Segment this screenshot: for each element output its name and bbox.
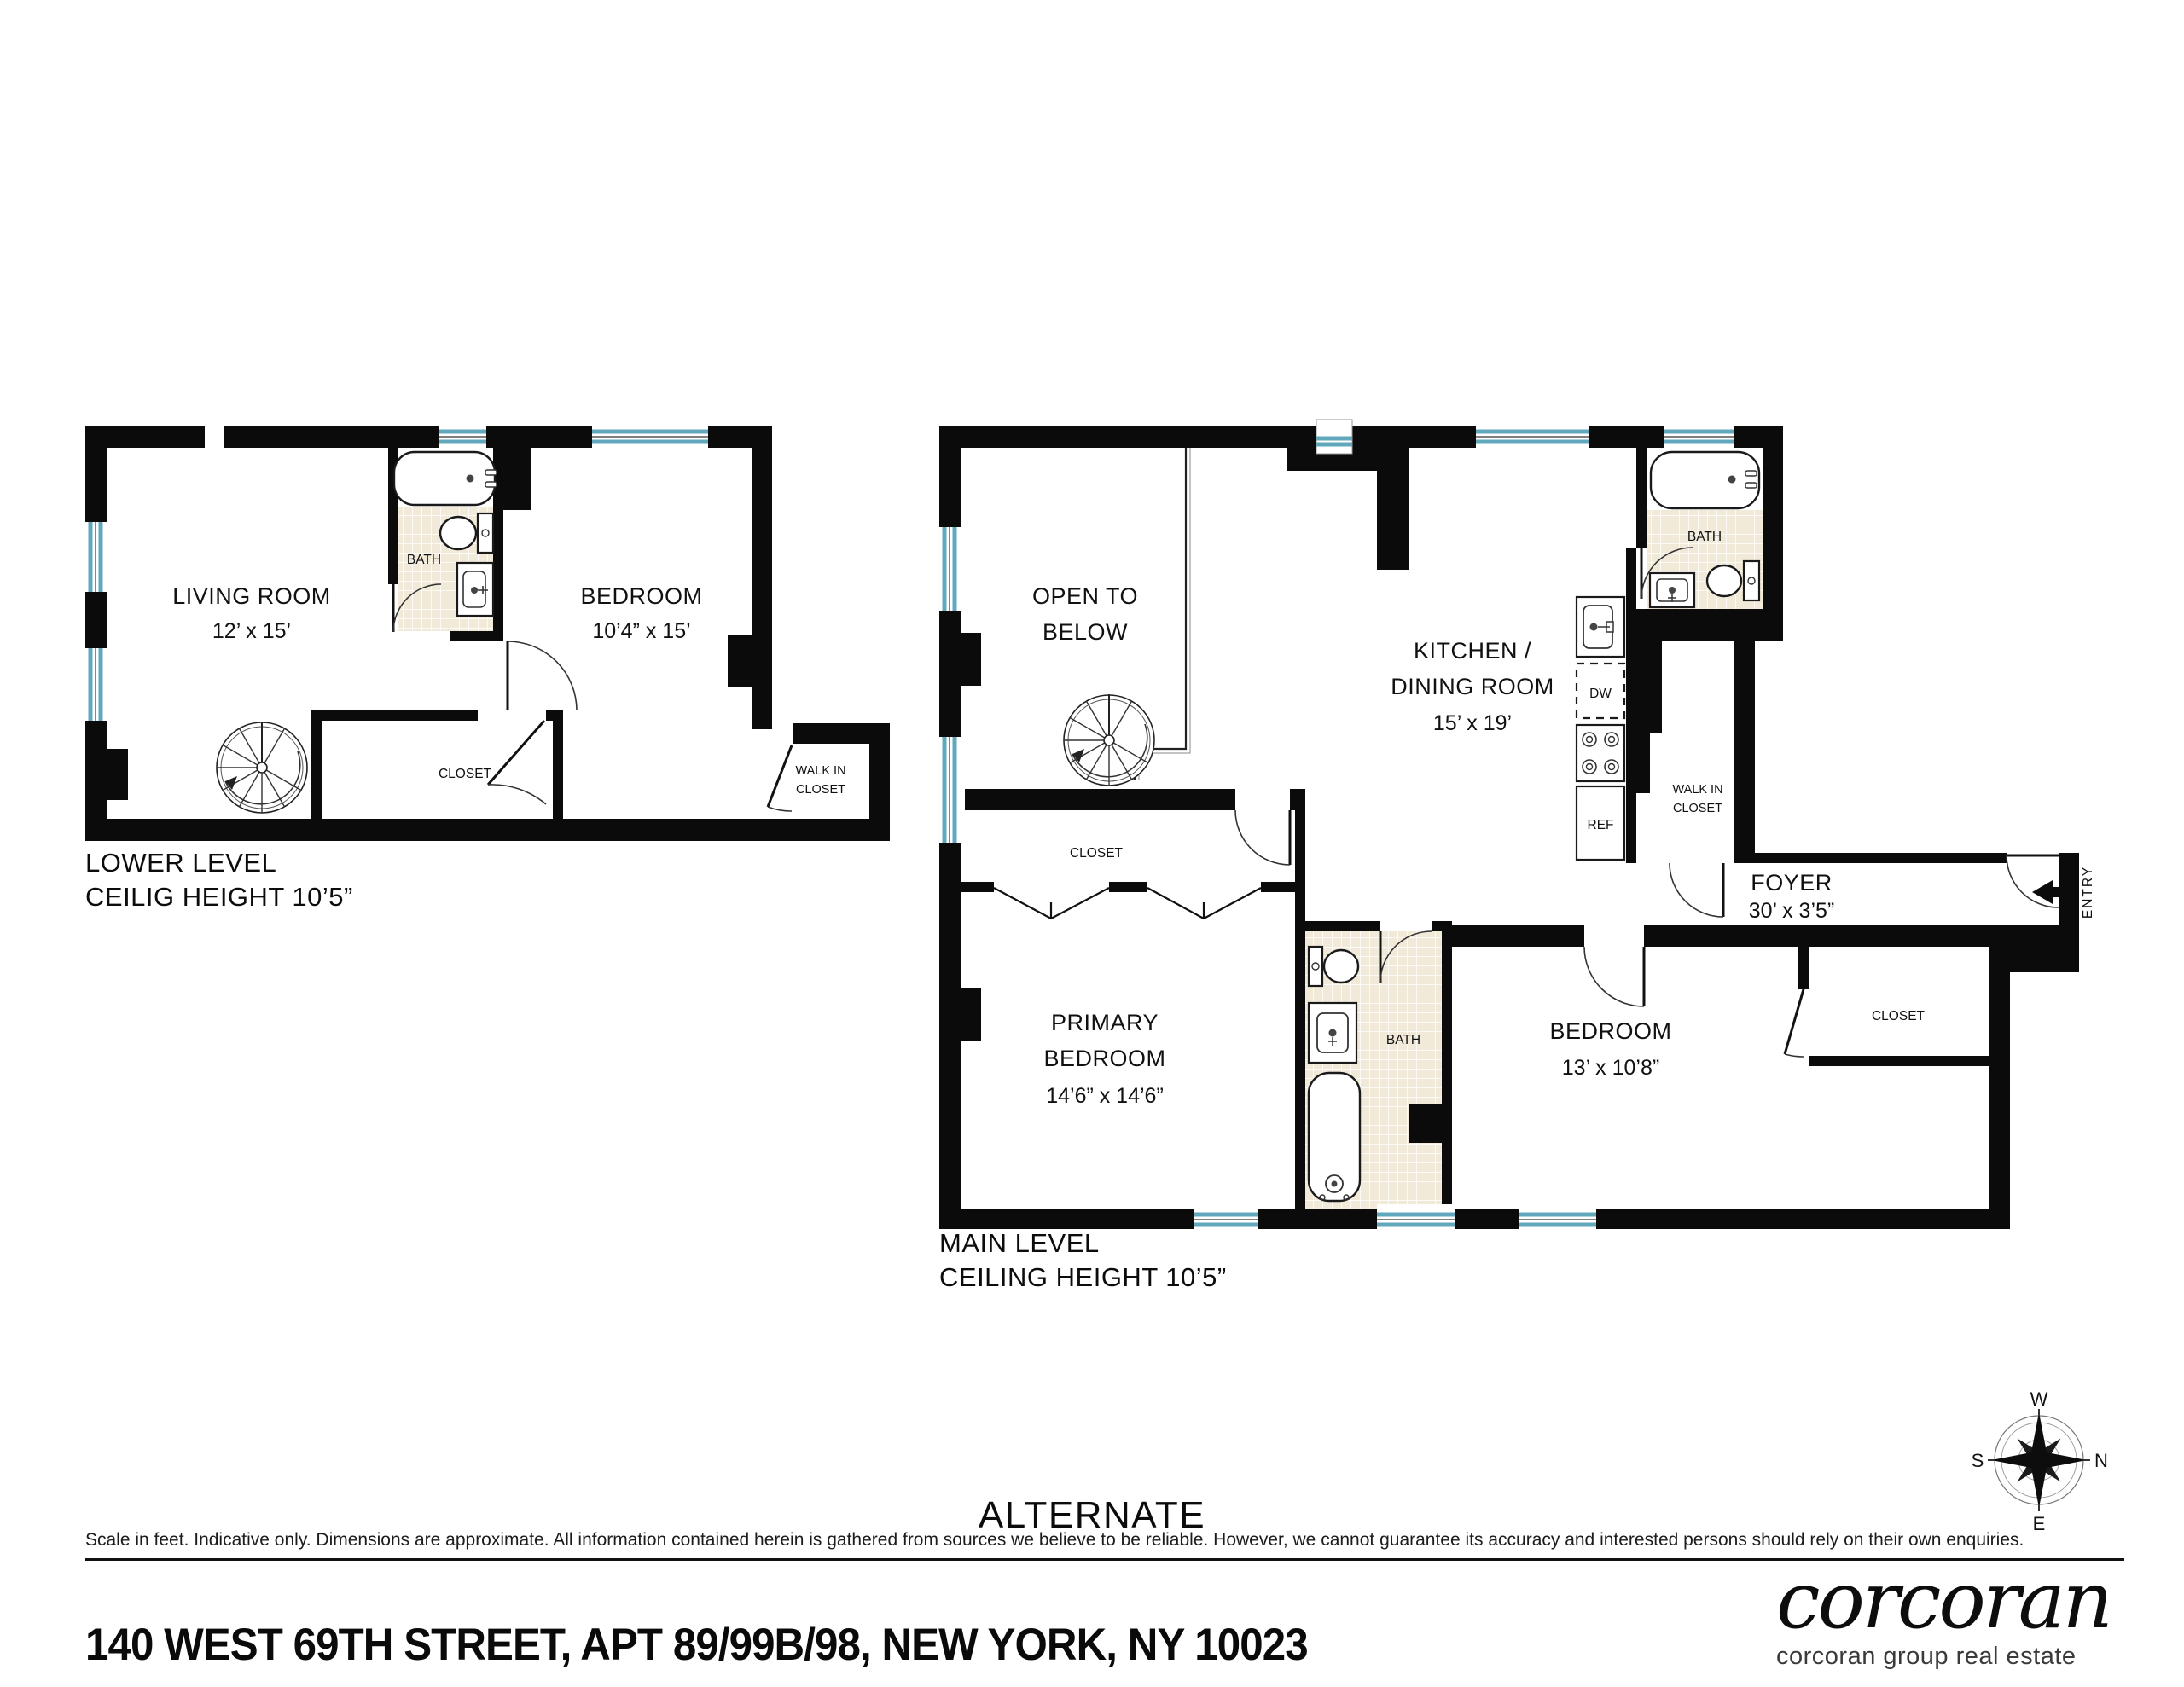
floorplan-drawing: LIVING ROOM 12’ x 15’ BEDROOM 10’4” x 15… xyxy=(0,0,2184,1687)
primary-bedroom-dims: 14’6” x 14’6” xyxy=(1046,1084,1164,1108)
main-level-caption: MAIN LEVEL CEILING HEIGHT 10’5” xyxy=(939,1226,1227,1296)
open-to-below-label-2: BELOW xyxy=(1043,619,1128,645)
primary-bath-label: BATH xyxy=(1386,1033,1420,1047)
kitchen-label-1: KITCHEN / xyxy=(1414,638,1531,664)
sink-icon xyxy=(1309,1003,1356,1063)
floorplan-page: LIVING ROOM 12’ x 15’ BEDROOM 10’4” x 15… xyxy=(0,0,2184,1687)
open-to-below-label-1: OPEN TO xyxy=(1032,583,1138,609)
door-arc xyxy=(1584,947,1644,1006)
main-walkin-label-1: WALK IN xyxy=(1672,783,1722,797)
window xyxy=(80,648,111,721)
compass-south-label: S xyxy=(1972,1450,1984,1471)
door-arc xyxy=(768,745,792,811)
lower-walkin-label-1: WALK IN xyxy=(795,764,845,778)
door-arc xyxy=(1235,810,1290,865)
toilet-icon xyxy=(440,513,493,553)
window xyxy=(934,737,965,843)
lower-closet-label: CLOSET xyxy=(439,767,492,781)
lower-level-plan: LIVING ROOM 12’ x 15’ BEDROOM 10’4” x 15… xyxy=(80,421,890,841)
brand-block: corcoran corcoran group real estate xyxy=(1776,1568,2143,1671)
primary-bedroom-label-1: PRIMARY xyxy=(1051,1010,1159,1035)
compass-north-label: N xyxy=(2094,1450,2108,1471)
toilet-icon xyxy=(1309,947,1358,986)
door-arc xyxy=(508,641,577,710)
entry-label: ENTRY xyxy=(2081,866,2095,919)
window xyxy=(934,527,965,611)
window xyxy=(439,421,486,452)
window xyxy=(1664,421,1734,452)
window xyxy=(1377,1204,1455,1235)
sink-icon xyxy=(1650,573,1694,607)
lower-bedroom-label: BEDROOM xyxy=(580,583,702,609)
lower-bath-label: BATH xyxy=(407,553,441,567)
bathtub-icon xyxy=(1309,1073,1360,1201)
refrigerator-label: REF xyxy=(1588,818,1614,832)
lower-level-caption: LOWER LEVEL CEILIG HEIGHT 10’5” xyxy=(85,846,353,915)
sink-icon xyxy=(457,563,493,616)
window xyxy=(592,421,708,452)
toilet-icon xyxy=(1707,561,1759,600)
stove-icon xyxy=(1577,725,1624,781)
window xyxy=(1316,420,1352,454)
kitchen-appliances: DW REF xyxy=(1577,597,1624,860)
sink-icon xyxy=(1577,597,1624,657)
foyer-dims: 30’ x 3’5” xyxy=(1749,899,1835,923)
main-bedroom-label: BEDROOM xyxy=(1549,1018,1671,1044)
living-room-label: LIVING ROOM xyxy=(172,583,331,609)
kitchen-dims: 15’ x 19’ xyxy=(1433,711,1512,735)
property-address: 140 WEST 69TH STREET, APT 89/99B/98, NEW… xyxy=(85,1619,1308,1671)
main-level-caption-line2: CEILING HEIGHT 10’5” xyxy=(939,1261,1227,1295)
main-bedroom-dims: 13’ x 10’8” xyxy=(1562,1056,1659,1080)
upper-bath-label: BATH xyxy=(1687,530,1722,544)
door-arc xyxy=(488,721,546,804)
door-arc xyxy=(1785,989,1804,1057)
lower-bedroom-dims: 10’4” x 15’ xyxy=(592,619,690,643)
main-level-walls xyxy=(939,426,2079,1229)
bathtub-icon xyxy=(394,452,497,505)
window xyxy=(1519,1204,1596,1235)
brand-logo: corcoran xyxy=(1776,1568,2143,1634)
spiral-stair-icon xyxy=(1064,694,1154,786)
lower-level-caption-line2: CEILIG HEIGHT 10’5” xyxy=(85,880,353,914)
bedroom-closet-label: CLOSET xyxy=(1872,1009,1926,1023)
door-arc xyxy=(1670,863,1723,917)
lower-walkin-label-2: CLOSET xyxy=(796,783,845,797)
spiral-stair-icon xyxy=(217,722,307,813)
compass-west-label: W xyxy=(2030,1388,2048,1410)
primary-bedroom-label-2: BEDROOM xyxy=(1043,1046,1165,1071)
kitchen-label-2: DINING ROOM xyxy=(1391,674,1554,699)
bathtub-icon xyxy=(1651,452,1759,508)
dishwasher-label: DW xyxy=(1589,687,1612,701)
main-closet-label: CLOSET xyxy=(1070,846,1124,861)
main-level-caption-line1: MAIN LEVEL xyxy=(939,1226,1227,1261)
main-walkin-label-2: CLOSET xyxy=(1673,802,1722,815)
disclaimer-text: Scale in feet. Indicative only. Dimensio… xyxy=(85,1530,2024,1551)
foyer-label: FOYER xyxy=(1751,870,1833,896)
brand-tagline: corcoran group real estate xyxy=(1776,1643,2143,1671)
living-room-dims: 12’ x 15’ xyxy=(212,619,291,643)
window xyxy=(1476,421,1589,452)
window xyxy=(80,522,111,592)
lower-level-caption-line1: LOWER LEVEL xyxy=(85,846,353,880)
main-level-plan: DW REF xyxy=(934,420,2095,1235)
bifold-doors-icon xyxy=(994,888,1261,919)
